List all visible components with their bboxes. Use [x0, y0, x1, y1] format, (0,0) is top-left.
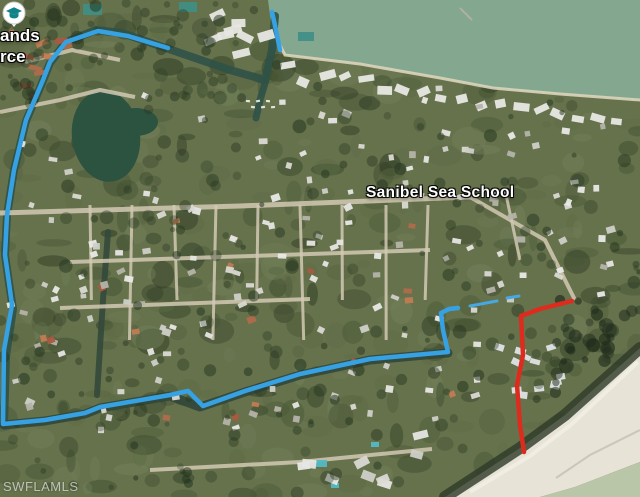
blue-route-bay-spur — [272, 12, 280, 50]
blue-route-main — [3, 31, 458, 424]
poi-label-sanibel-sea-school[interactable]: Sanibel Sea School — [366, 184, 514, 202]
red-route — [517, 301, 572, 452]
school-icon[interactable] — [0, 0, 28, 31]
map-canvas[interactable]: ands rce Sanibel Sea School SWFLAMLS — [0, 0, 640, 497]
mls-watermark: SWFLAMLS — [3, 479, 79, 494]
partial-poi-label-line2: rce — [0, 47, 26, 67]
blue-route-dashed-tail — [507, 296, 519, 298]
blue-route-dashed-tail — [470, 301, 497, 306]
route-overlays — [0, 0, 640, 497]
